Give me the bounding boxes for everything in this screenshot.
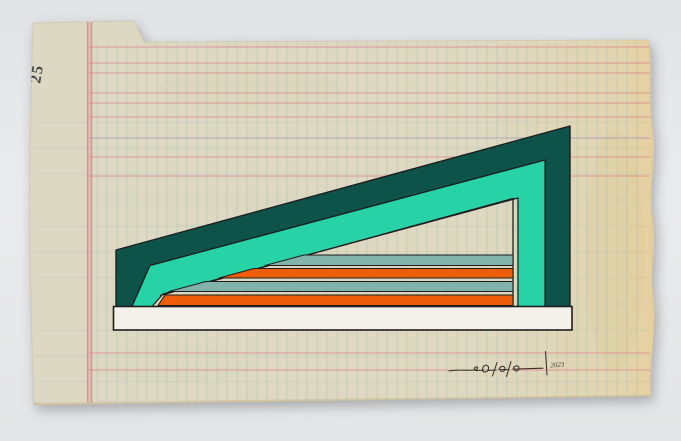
paper-stain bbox=[585, 130, 645, 370]
photo-of-artwork: 25 2023 bbox=[0, 0, 681, 441]
signature-year: 2023 bbox=[550, 360, 565, 369]
base-bar bbox=[114, 307, 573, 331]
paper-sheet: 25 2023 bbox=[27, 21, 654, 405]
stripe-gray-1 bbox=[265, 255, 513, 266]
stripe-gray-2 bbox=[169, 282, 513, 292]
stripe-orange-2 bbox=[158, 295, 513, 306]
paper-stain bbox=[90, 347, 250, 383]
stripe-orange-1 bbox=[219, 269, 513, 279]
scene-canvas: 25 2023 bbox=[0, 0, 681, 441]
